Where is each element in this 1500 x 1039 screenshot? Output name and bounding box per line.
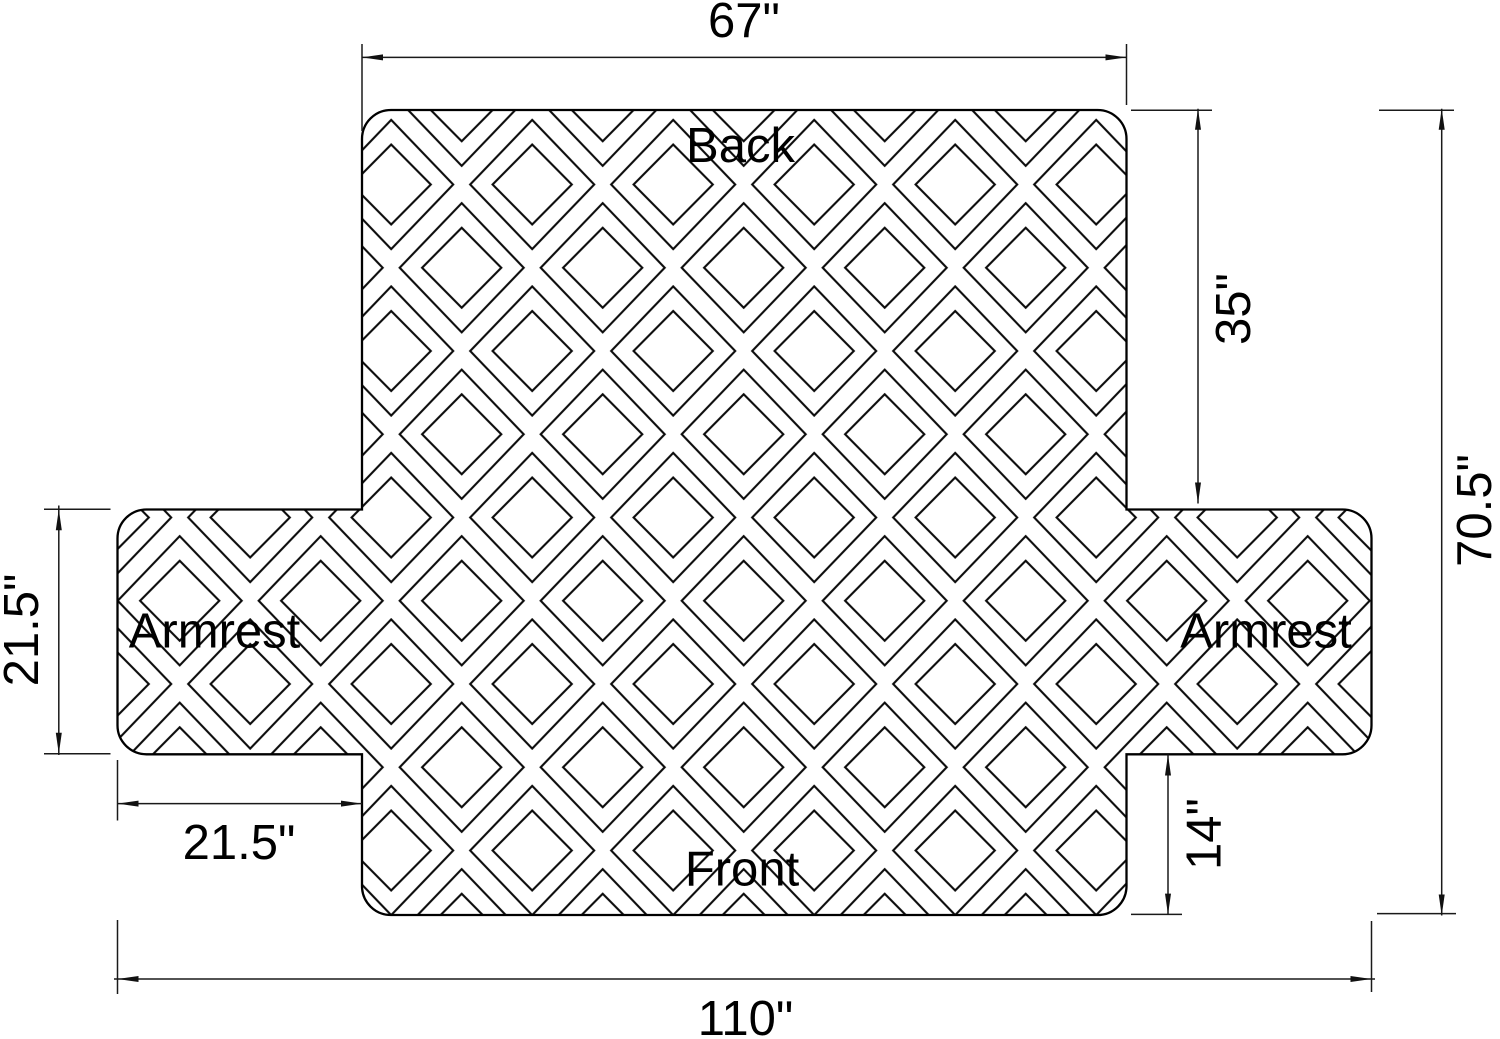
svg-text:21.5": 21.5" — [183, 816, 296, 870]
svg-text:Back: Back — [686, 119, 795, 173]
svg-text:Front: Front — [685, 843, 800, 897]
svg-text:70.5": 70.5" — [1448, 454, 1500, 567]
svg-text:110": 110" — [698, 992, 794, 1039]
svg-text:Armrest: Armrest — [129, 605, 301, 659]
svg-text:Armrest: Armrest — [1180, 605, 1352, 659]
svg-text:35": 35" — [1207, 273, 1261, 345]
svg-text:21.5": 21.5" — [0, 574, 49, 687]
svg-text:14": 14" — [1178, 798, 1232, 870]
svg-text:67": 67" — [708, 0, 780, 48]
